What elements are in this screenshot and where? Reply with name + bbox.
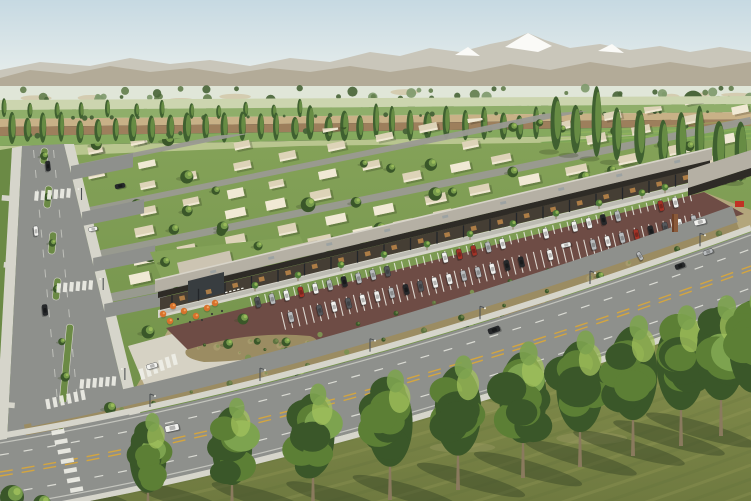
- tree-highlight: [216, 188, 219, 191]
- distant-tree: [429, 88, 434, 93]
- distant-tree: [501, 86, 506, 91]
- distant-tree: [297, 85, 303, 91]
- distant-tree: [581, 84, 590, 93]
- poplar-highlight: [3, 100, 6, 113]
- tree-foliage: [506, 399, 537, 426]
- umbrella-highlight: [163, 312, 165, 314]
- poplar-shadow: [600, 160, 620, 165]
- tree-highlight: [432, 160, 436, 164]
- shrub-highlight: [250, 339, 253, 342]
- tree-foliage: [213, 460, 241, 484]
- poplar-highlight: [375, 106, 379, 131]
- hedgerow-tree: [494, 112, 498, 116]
- tree-highlight: [13, 488, 20, 495]
- hedgerow-tree: [283, 115, 286, 118]
- shrub-highlight: [239, 352, 241, 354]
- aerial-rendering: daytime, clear weather: [0, 0, 751, 501]
- poplar-highlight: [241, 114, 245, 135]
- tree-highlight: [563, 126, 565, 128]
- cafe-table: [201, 319, 203, 321]
- distant-tree: [492, 86, 497, 91]
- streetlight-head: [99, 278, 101, 280]
- poplar-highlight: [150, 118, 155, 138]
- distant-tree: [406, 88, 416, 98]
- shrub-highlight: [229, 381, 232, 384]
- poplar-highlight: [56, 104, 59, 116]
- hedgerow-tree: [706, 110, 709, 113]
- palm-highlight: [254, 283, 257, 286]
- palm-highlight: [555, 211, 558, 214]
- crosswalk-stripe: [75, 281, 80, 291]
- shrub-highlight: [346, 350, 349, 353]
- crosswalk-stripe: [92, 378, 97, 388]
- poplar-highlight: [80, 104, 83, 116]
- poplar-highlight: [79, 122, 83, 138]
- tree-highlight: [229, 340, 232, 343]
- distant-tree: [121, 87, 129, 95]
- cafe-umbrella: [193, 313, 199, 319]
- umbrella-highlight: [196, 314, 198, 316]
- tree-top-tuft: [455, 355, 473, 379]
- shrub-highlight: [275, 339, 278, 342]
- crosswalk-stripe: [88, 280, 93, 290]
- tree-foliage: [138, 463, 167, 487]
- poplar-shadow: [539, 149, 559, 154]
- poplar-shadow: [580, 156, 600, 161]
- shrub-highlight: [461, 315, 464, 318]
- cafe-table: [211, 313, 213, 315]
- tree-foliage: [614, 370, 651, 401]
- poplar-highlight: [218, 106, 221, 116]
- tree-highlight: [287, 339, 290, 342]
- shrub-highlight: [423, 328, 426, 331]
- poplar-highlight: [161, 101, 164, 114]
- car-roof: [34, 229, 37, 233]
- palm-highlight: [426, 242, 429, 245]
- hedgerow-tree: [247, 115, 250, 118]
- car-roof: [46, 164, 49, 168]
- shrub-highlight: [676, 247, 679, 250]
- shrub-highlight: [358, 322, 360, 324]
- distant-tree: [718, 86, 723, 91]
- car-roof: [43, 308, 47, 313]
- poplar-highlight: [359, 117, 363, 135]
- distant-tree: [202, 85, 210, 93]
- tree-highlight: [600, 273, 602, 275]
- hedgerow-tree: [178, 131, 182, 135]
- poplar-highlight: [169, 117, 174, 136]
- poplar-highlight: [223, 115, 227, 137]
- tree-highlight: [53, 240, 55, 242]
- tree-top-tuft: [387, 369, 404, 392]
- crosswalk-stripe: [60, 189, 65, 199]
- distant-tree: [234, 86, 239, 91]
- hedgerow-tree: [303, 130, 306, 133]
- tree-foliage: [439, 401, 477, 434]
- umbrella-highlight: [215, 301, 217, 303]
- umbrella-highlight: [207, 306, 209, 308]
- streetlight-head: [484, 307, 486, 309]
- shrub-highlight: [434, 301, 436, 303]
- hedgerow-tree: [71, 116, 75, 120]
- tree-highlight: [540, 120, 542, 122]
- hedgerow-tree: [419, 114, 422, 117]
- poplar-highlight: [107, 101, 110, 114]
- poplar-highlight: [60, 114, 64, 136]
- poplar-highlight: [97, 121, 101, 137]
- tree-top-tuft: [577, 330, 595, 354]
- crosswalk-stripe: [79, 379, 84, 389]
- tree-highlight: [513, 168, 516, 171]
- streetlight-head: [704, 234, 706, 236]
- shrub-highlight: [265, 348, 267, 350]
- tree-highlight: [690, 142, 693, 145]
- distant-tree: [347, 87, 357, 97]
- tree-highlight: [612, 167, 615, 170]
- distant-tree: [417, 88, 422, 93]
- shrub-highlight: [504, 304, 506, 306]
- cafe-umbrella: [170, 303, 176, 309]
- shrub-highlight: [121, 408, 123, 410]
- umbrella-highlight: [170, 319, 172, 321]
- tree-highlight: [188, 207, 191, 210]
- umbrella-highlight: [173, 304, 175, 306]
- hedgerow-tree: [110, 115, 114, 119]
- palm-highlight: [383, 252, 386, 255]
- distant-tree: [729, 86, 734, 91]
- tree-highlight: [259, 243, 262, 246]
- tree-top-tuft: [520, 341, 538, 365]
- driveway-pad: [2, 332, 11, 338]
- poplar-highlight: [205, 116, 209, 135]
- crosswalk-stripe: [47, 190, 52, 200]
- cafe-umbrella: [160, 311, 166, 317]
- crosswalk-stripe: [99, 377, 104, 387]
- tree-highlight: [391, 165, 394, 168]
- poplar-highlight: [29, 104, 32, 115]
- monument-shade: [672, 214, 674, 232]
- distant-field-patch: [219, 94, 251, 100]
- tree-highlight: [111, 404, 115, 408]
- palm-highlight: [664, 185, 667, 188]
- tree-highlight: [166, 258, 169, 261]
- poplar-highlight: [574, 109, 580, 144]
- shrub-highlight: [383, 338, 385, 340]
- shrub-highlight: [395, 311, 398, 314]
- cafe-umbrella: [167, 318, 173, 324]
- crosswalk-stripe: [105, 377, 110, 387]
- crosswalk-stripe: [69, 282, 74, 292]
- crosswalk-stripe: [86, 378, 91, 388]
- palm-highlight: [512, 221, 515, 224]
- shrub-highlight: [257, 339, 260, 342]
- palm-highlight: [297, 272, 300, 275]
- streetlight-head: [121, 368, 123, 370]
- tree-highlight: [436, 189, 440, 193]
- red-storefront-sign: [735, 201, 744, 207]
- tree-highlight: [149, 327, 153, 331]
- tree-top-tuft: [630, 315, 649, 340]
- shrub-highlight: [319, 332, 322, 335]
- hedgerow-tree: [90, 115, 94, 119]
- driveway-pad: [4, 262, 13, 268]
- crosswalk-stripe: [41, 190, 46, 200]
- crosswalk-stripe: [111, 376, 116, 386]
- streetlight-head: [154, 395, 156, 397]
- tree-highlight: [66, 374, 69, 377]
- tree-highlight: [244, 315, 247, 318]
- shrub-highlight: [546, 289, 548, 291]
- shrub-highlight: [718, 231, 721, 234]
- cafe-table: [221, 310, 223, 312]
- poplar-highlight: [42, 115, 46, 137]
- tree-highlight: [585, 173, 589, 177]
- crosswalk-stripe: [56, 283, 61, 293]
- streetlight-head: [77, 188, 79, 190]
- shrub-highlight: [198, 347, 200, 349]
- tree-top-tuft: [145, 413, 159, 432]
- shrub-highlight: [191, 391, 193, 393]
- poplar-highlight: [260, 115, 264, 134]
- tree-highlight: [364, 161, 366, 163]
- cafe-umbrella: [204, 305, 210, 311]
- palm-highlight: [340, 262, 343, 265]
- crosswalk-stripe: [63, 282, 68, 292]
- hedgerow-tree: [35, 133, 41, 139]
- crosswalk-stripe: [34, 191, 39, 201]
- poplar-highlight: [391, 108, 395, 132]
- tree-highlight: [309, 199, 313, 203]
- crosswalk-stripe: [82, 281, 87, 291]
- poplar-highlight: [409, 112, 413, 134]
- cafe-table: [177, 318, 179, 320]
- tree-highlight: [174, 226, 177, 229]
- crosswalk-stripe: [53, 189, 58, 199]
- poplar-highlight: [245, 103, 248, 114]
- poplar-highlight: [616, 112, 622, 150]
- shrub-highlight: [628, 261, 631, 264]
- streetlight-head: [374, 340, 376, 342]
- poplar-highlight: [445, 108, 449, 132]
- poplar-highlight: [11, 114, 15, 137]
- hedgerow-tree: [314, 114, 317, 117]
- poplar-highlight: [309, 108, 314, 133]
- crosswalk-stripe: [66, 188, 71, 198]
- poplar-highlight: [294, 119, 299, 135]
- tree-highlight: [45, 153, 47, 155]
- distant-tree: [178, 86, 184, 92]
- shrub-highlight: [204, 344, 206, 346]
- poplar-highlight: [554, 101, 561, 140]
- tree-highlight: [62, 339, 64, 341]
- distant-tree: [153, 89, 161, 97]
- tree-highlight: [513, 124, 516, 127]
- shrub-highlight: [216, 344, 219, 347]
- poplar-highlight: [638, 114, 645, 153]
- tree-top-tuft: [310, 384, 326, 406]
- umbrella-highlight: [184, 309, 186, 311]
- poplar-highlight: [595, 92, 601, 143]
- poplar-highlight: [191, 104, 194, 115]
- palm-highlight: [469, 231, 472, 234]
- distant-tree: [708, 88, 717, 97]
- cafe-table: [189, 321, 191, 323]
- shrub-highlight: [265, 372, 268, 375]
- rendering-canvas: [0, 0, 751, 501]
- shrub-highlight: [472, 290, 474, 292]
- poplar-highlight: [680, 117, 686, 160]
- palm-highlight: [598, 200, 601, 203]
- poplar-highlight: [186, 115, 191, 137]
- driveway-pad: [2, 195, 11, 201]
- streetlight-head: [264, 369, 266, 371]
- tree-top-tuft: [229, 398, 244, 419]
- streetlight-head: [594, 272, 596, 274]
- distant-tree: [652, 89, 657, 94]
- poplar-highlight: [662, 124, 668, 159]
- tree-foliage: [295, 422, 330, 452]
- poplar-highlight: [136, 104, 139, 114]
- tree-highlight: [223, 223, 226, 226]
- distant-tree: [120, 95, 124, 99]
- cafe-umbrella: [212, 300, 218, 306]
- poplar-highlight: [299, 100, 302, 113]
- hedgerow-tree: [383, 112, 388, 117]
- poplar-highlight: [131, 116, 136, 137]
- palm-highlight: [641, 190, 644, 193]
- distant-tree: [564, 91, 568, 95]
- tree-highlight: [357, 198, 360, 201]
- tree-highlight: [453, 189, 456, 192]
- car: [41, 304, 48, 317]
- tree-top-tuft: [678, 305, 697, 330]
- distant-tree: [702, 90, 708, 96]
- poplar-highlight: [343, 113, 348, 135]
- cafe-umbrella: [181, 308, 187, 314]
- poplar-highlight: [275, 115, 279, 135]
- poplar-shadow: [559, 153, 579, 158]
- poplar-highlight: [115, 120, 119, 137]
- tree-highlight: [188, 172, 192, 176]
- distant-tree: [20, 87, 27, 94]
- driveway-pad: [6, 402, 15, 408]
- poplar-highlight: [26, 120, 30, 137]
